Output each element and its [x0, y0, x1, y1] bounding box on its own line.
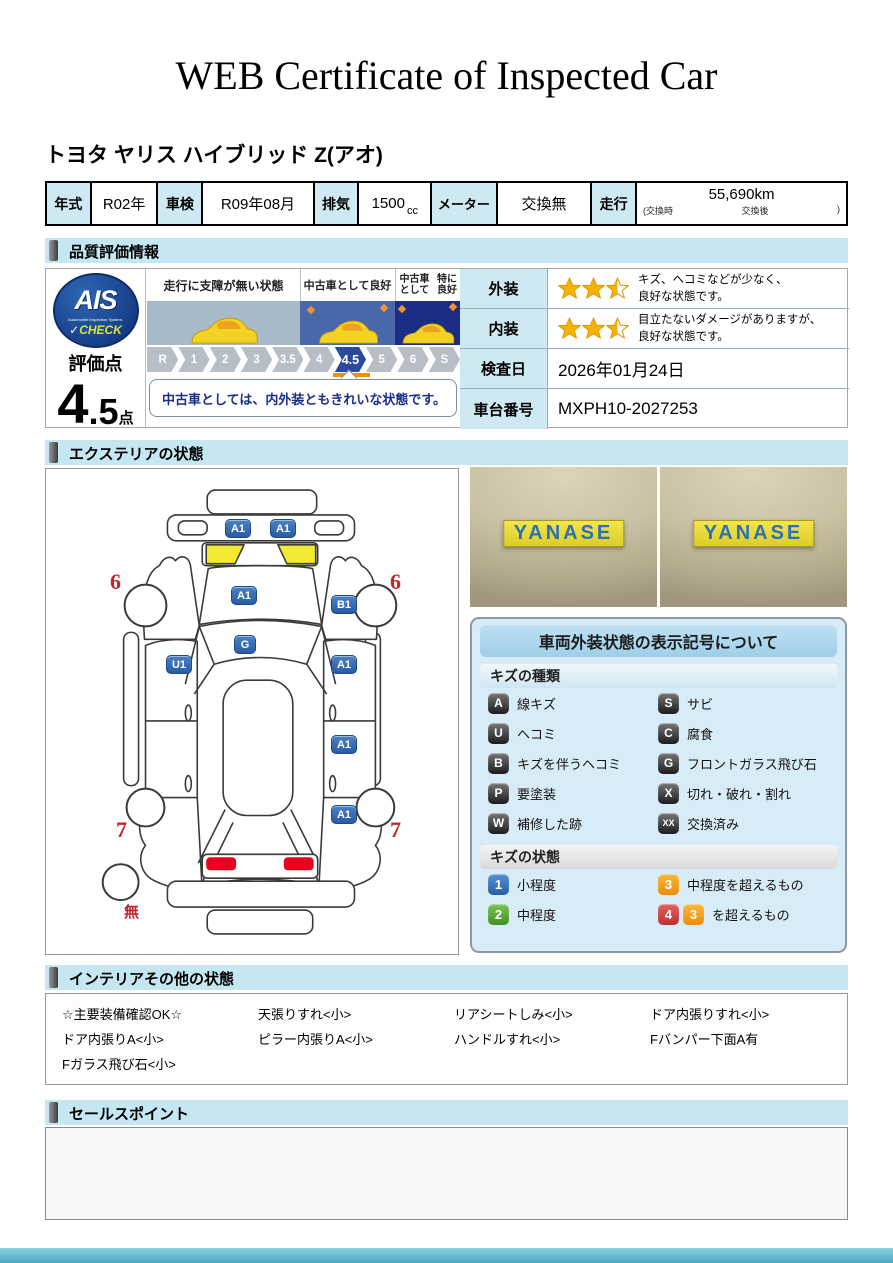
section-title-quality: 品質評価情報: [69, 241, 159, 262]
severity-badge-4: 4: [658, 904, 679, 925]
exterior-rating-value: キズ、ヘコミなどが少なく、 良好な状態です。: [548, 269, 849, 308]
yanase-sign: YANASE: [693, 520, 815, 547]
damage-code-label: 補修した跡: [517, 814, 582, 833]
ais-check-word: CHECK: [79, 323, 122, 337]
legend-item: P 要塗装: [480, 783, 658, 804]
damage-code-label: 腐食: [687, 724, 713, 743]
legend-row: P 要塗装 X 切れ・破れ・割れ: [480, 778, 837, 808]
mileage-paren: ): [837, 204, 840, 217]
inspection-date-value: 2026年01月24日: [548, 349, 849, 388]
yanase-sign: YANASE: [503, 520, 625, 547]
damage-marker-right-front-door: A1: [331, 655, 357, 674]
exterior-text-line2: 良好な状態です。: [638, 291, 729, 303]
section-header-sales: セールスポイント: [45, 1100, 848, 1125]
sales-point-box: [45, 1127, 848, 1220]
section-title-interior: インテリアその他の状態: [69, 968, 234, 989]
section-header-quality: 品質評価情報: [45, 238, 848, 263]
legend-row: A 線キズ S サビ: [480, 688, 837, 718]
star-full-icon: [582, 277, 605, 300]
severity-badge-1: 1: [488, 874, 509, 895]
interior-rating-text: 目立たないダメージがありますが、 良好な状態です。: [638, 312, 821, 345]
interior-item: ☆主要装備確認OK☆: [62, 1002, 258, 1027]
interior-column-1: ☆主要装備確認OK☆ ドア内張りA<小> Fガラス飛び石<小>: [62, 1002, 258, 1084]
zone-band-2: [300, 301, 395, 345]
damage-code-label: 要塗装: [517, 784, 556, 803]
damage-code-label: サビ: [687, 694, 713, 713]
vehicle-name: トヨタ ヤリス ハイブリッド Z(アオ): [45, 139, 383, 169]
score-value: 4 .5 点: [57, 382, 133, 427]
interior-column-3: リアシートしみ<小> ハンドルすれ<小>: [454, 1002, 650, 1084]
spec-table: 年式 R02年 車検 R09年08月 排気 1500 cc メーター 交換無 走…: [45, 181, 848, 226]
zone-label-3-line2: 特に良好: [434, 274, 460, 297]
damage-marker-front-bumper-left: A1: [225, 519, 251, 538]
legend-item: U ヘコミ: [480, 723, 658, 744]
damage-code-badge-w: W: [488, 813, 509, 834]
severity-label: を超えるもの: [712, 905, 790, 924]
legend-item: S サビ: [658, 693, 837, 714]
interior-item: Fガラス飛び石<小>: [62, 1052, 258, 1077]
grade-scale: R 1 2 3 3.5 4 4.5 5 6 S: [147, 347, 460, 372]
chassis-number-value: MXPH10-2027253: [548, 389, 849, 429]
zone-label-3-line1: 中古車として: [395, 274, 434, 297]
mileage-after-exchange: 交換後: [742, 204, 769, 217]
grade-step-4: 4: [303, 347, 334, 372]
damage-code-badge-g: G: [658, 753, 679, 774]
severity-label: 中程度: [517, 905, 556, 924]
damage-marker-right-quarter: A1: [331, 805, 357, 824]
spec-displacement-value: 1500 cc: [359, 183, 432, 224]
damage-code-badge-x: X: [658, 783, 679, 804]
inspection-date-row: 検査日 2026年01月24日: [460, 349, 849, 389]
grade-step-r: R: [147, 347, 178, 372]
interior-star-rating: [558, 317, 630, 340]
spec-inspection-label: 車検: [158, 183, 203, 224]
ais-score-block: AIS Automobile Inspection System. ✓CHECK…: [46, 269, 146, 427]
legend-row: 2 中程度 4 3 を超えるもの: [480, 899, 837, 929]
severity-label: 小程度: [517, 875, 556, 894]
chassis-number-label: 車台番号: [460, 389, 548, 429]
section-title-exterior: エクステリアの状態: [69, 443, 204, 464]
interior-rating-value: 目立たないダメージがありますが、 良好な状態です。: [548, 309, 849, 348]
sparkle-icon: [449, 303, 457, 311]
certificate-page: WEB Certificate of Inspected Car トヨタ ヤリス…: [0, 0, 893, 1263]
spec-year-value: R02年: [92, 183, 159, 224]
spec-meter-label: メーター: [432, 183, 498, 224]
car-illustration: [188, 315, 260, 345]
zone-label-3: 中古車として 特に良好: [395, 269, 460, 301]
damage-marker-front-bumper-right: A1: [270, 519, 296, 538]
displacement-number: 1500: [372, 195, 405, 212]
spec-displacement-label: 排気: [315, 183, 360, 224]
legend-row: 1 小程度 3 中程度を超えるもの: [480, 869, 837, 899]
legend-item: G フロントガラス飛び石: [658, 753, 837, 774]
spec-mileage-label: 走行: [592, 183, 637, 224]
grade-step-5: 5: [366, 347, 397, 372]
tire-depth-rear-left: 7: [116, 817, 127, 843]
tire-depth-front-right: 6: [390, 569, 401, 595]
grade-step-1: 1: [178, 347, 209, 372]
ais-logo: AIS Automobile Inspection System. ✓CHECK: [53, 273, 139, 348]
legend-row: B キズを伴うヘコミ G フロントガラス飛び石: [480, 748, 837, 778]
mileage-number: 55,690km: [643, 186, 840, 203]
interior-column-2: 天張りすれ<小> ピラー内張りA<小>: [258, 1002, 454, 1084]
zone-band-1: [147, 301, 300, 345]
grade-step-2: 2: [210, 347, 241, 372]
damage-code-badge-p: P: [488, 783, 509, 804]
legend-item: 3 中程度を超えるもの: [658, 874, 837, 895]
interior-item: 天張りすれ<小>: [258, 1002, 454, 1027]
spec-meter-value: 交換無: [498, 183, 593, 224]
spare-tire-none-label: 無: [124, 901, 139, 922]
sparkle-icon: [380, 304, 388, 312]
damage-code-badge-b: B: [488, 753, 509, 774]
car-illustration: [316, 318, 380, 345]
score-integer: 4: [57, 382, 88, 427]
exterior-rating-label: 外装: [460, 269, 548, 308]
section-accent-bar: [49, 240, 58, 261]
legend-item: W 補修した跡: [480, 813, 658, 834]
mileage-at-exchange: (交換時: [643, 204, 673, 217]
score-unit: 点: [119, 413, 134, 425]
inspection-date-label: 検査日: [460, 349, 548, 388]
sparkle-icon: [307, 306, 315, 314]
interior-condition-box: ☆主要装備確認OK☆ ドア内張りA<小> Fガラス飛び石<小> 天張りすれ<小>…: [45, 993, 848, 1085]
zone-label-2: 中古車として良好: [300, 269, 395, 301]
grade-step-s: S: [429, 347, 460, 372]
spec-mileage-value: 55,690km (交換時 交換後 ): [637, 183, 846, 224]
damage-marker-hood: A1: [231, 586, 257, 605]
grade-step-3: 3: [241, 347, 272, 372]
section-accent-bar: [49, 1102, 58, 1123]
legend-row: W 補修した跡 XX 交換済み: [480, 808, 837, 838]
damage-code-label: 切れ・破れ・割れ: [687, 784, 791, 803]
damage-code-badge-a: A: [488, 693, 509, 714]
ais-logo-text: AIS: [74, 285, 116, 316]
interior-item: ハンドルすれ<小>: [454, 1027, 650, 1052]
interior-item: ドア内張りすれ<小>: [650, 1002, 846, 1027]
severity-badge-2: 2: [488, 904, 509, 925]
legend-item: C 腐食: [658, 723, 837, 744]
legend-item: 1 小程度: [480, 874, 658, 895]
damage-code-label: 交換済み: [687, 814, 739, 833]
damage-code-label: ヘコミ: [517, 724, 556, 743]
interior-rating-label: 内装: [460, 309, 548, 348]
legend-item: X 切れ・破れ・割れ: [658, 783, 837, 804]
star-full-icon: [558, 277, 581, 300]
legend-item: 4 3 を超えるもの: [658, 904, 837, 925]
damage-marker-left-front-door: U1: [166, 655, 192, 674]
interior-rating-row: 内装 目立たないダメージがありますが、 良好な状態です。: [460, 309, 849, 349]
section-header-exterior: エクステリアの状態: [45, 440, 848, 465]
tire-depth-front-left: 6: [110, 569, 121, 595]
legend-states-header: キズの状態: [480, 845, 837, 869]
interior-item: ドア内張りA<小>: [62, 1027, 258, 1052]
star-half-icon: [606, 317, 629, 340]
exterior-rating-text: キズ、ヘコミなどが少なく、 良好な状態です。: [638, 272, 788, 305]
ais-logo-subtext: Automobile Inspection System.: [68, 317, 123, 322]
section-header-interior: インテリアその他の状態: [45, 965, 848, 990]
score-decimal: .5: [89, 398, 119, 427]
severity-label: 中程度を超えるもの: [687, 875, 804, 894]
exterior-star-rating: [558, 277, 630, 300]
damage-marker-right-rear-door: A1: [331, 735, 357, 754]
severity-badge-3: 3: [658, 874, 679, 895]
damage-marker-right-fender: B1: [331, 595, 357, 614]
car-body-outline: [46, 469, 458, 954]
damage-code-badge-xx: XX: [658, 813, 679, 834]
interior-item: Fバンパー下面A有: [650, 1027, 846, 1052]
star-half-icon: [606, 277, 629, 300]
page-title: WEB Certificate of Inspected Car: [0, 52, 893, 99]
grade-scale-block: 走行に支障が無い状態 中古車として良好 中古車として 特に良好: [147, 269, 460, 427]
severity-badge-3: 3: [683, 904, 704, 925]
tire-depth-rear-right: 7: [390, 817, 401, 843]
damage-code-label: フロントガラス飛び石: [687, 754, 817, 773]
section-accent-bar: [49, 967, 58, 988]
grade-step-6: 6: [397, 347, 428, 372]
legend-title: 車両外装状態の表示記号について: [480, 625, 837, 657]
vehicle-photo-2: YANASE: [660, 467, 847, 607]
legend-item: 2 中程度: [480, 904, 658, 925]
grade-step-3-5: 3.5: [272, 347, 303, 372]
mileage-subtext: (交換時 交換後 ): [643, 204, 840, 217]
zone-label-1: 走行に支障が無い状態: [147, 269, 300, 301]
exterior-text-line1: キズ、ヘコミなどが少なく、: [638, 274, 788, 286]
legend-item: B キズを伴うヘコミ: [480, 753, 658, 774]
spec-inspection-value: R09年08月: [203, 183, 314, 224]
displacement-unit: cc: [407, 205, 418, 217]
damage-symbol-legend: 車両外装状態の表示記号について キズの種類 A 線キズ S サビ U ヘコミ C…: [470, 617, 847, 953]
damage-code-badge-u: U: [488, 723, 509, 744]
footer-bar: [0, 1248, 893, 1263]
quality-detail-table: 外装 キズ、ヘコミなどが少なく、 良好な状態です。 内装: [460, 269, 849, 427]
car-damage-diagram: A1 A1 A1 B1 G U1 A1 A1 A1 6 6 7 7 無: [45, 468, 459, 955]
legend-row: U ヘコミ C 腐食: [480, 718, 837, 748]
legend-item: XX 交換済み: [658, 813, 837, 834]
vehicle-photo-1: YANASE: [470, 467, 657, 607]
damage-code-badge-s: S: [658, 693, 679, 714]
damage-code-label: キズを伴うヘコミ: [517, 754, 621, 773]
damage-code-label: 線キズ: [517, 694, 556, 713]
grade-step-4-5-active: 4.5: [335, 347, 366, 372]
legend-item: A 線キズ: [480, 693, 658, 714]
interior-column-4: ドア内張りすれ<小> Fバンパー下面A有: [650, 1002, 846, 1084]
interior-text-line1: 目立たないダメージがありますが、: [638, 314, 821, 326]
section-title-sales: セールスポイント: [69, 1103, 189, 1124]
exterior-rating-row: 外装 キズ、ヘコミなどが少なく、 良好な状態です。: [460, 269, 849, 309]
sparkle-icon: [398, 305, 406, 313]
section-accent-bar: [49, 442, 58, 463]
star-full-icon: [558, 317, 581, 340]
quality-panel: AIS Automobile Inspection System. ✓CHECK…: [45, 268, 848, 428]
interior-text-line2: 良好な状態です。: [638, 331, 729, 343]
chassis-number-row: 車台番号 MXPH10-2027253: [460, 389, 849, 429]
grade-comment: 中古車としては、内外装ともきれいな状態です。: [149, 379, 457, 417]
spec-year-label: 年式: [47, 183, 92, 224]
interior-item: ピラー内張りA<小>: [258, 1027, 454, 1052]
zone-band-3: [395, 301, 460, 345]
car-illustration: [400, 321, 456, 345]
damage-code-badge-c: C: [658, 723, 679, 744]
interior-item: リアシートしみ<小>: [454, 1002, 650, 1027]
star-full-icon: [582, 317, 605, 340]
legend-kinds-header: キズの種類: [480, 664, 837, 688]
check-icon: ✓: [69, 323, 79, 337]
damage-marker-windshield: G: [234, 635, 256, 654]
ais-check-text: ✓CHECK: [69, 323, 122, 337]
